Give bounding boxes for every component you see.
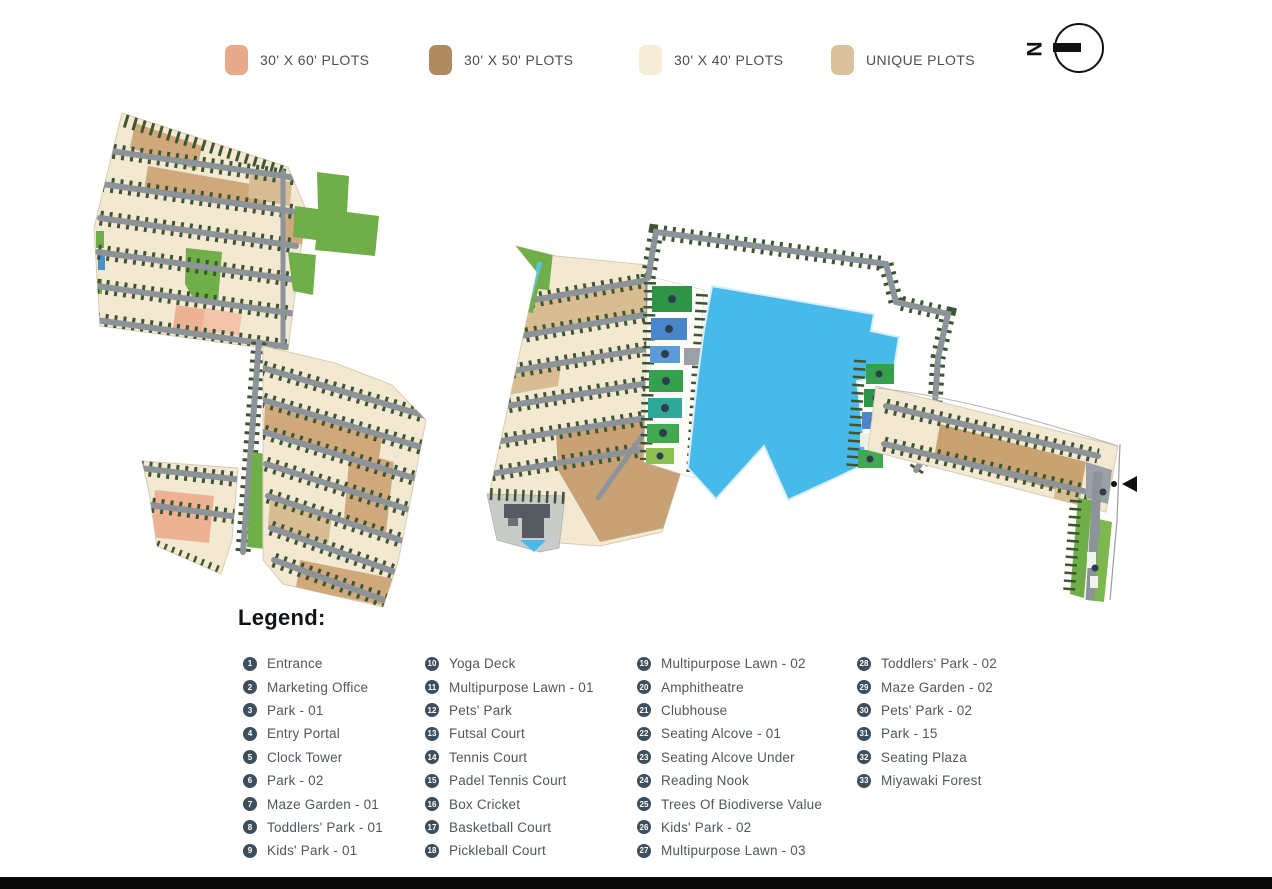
legend-item-label: Basketball Court — [449, 820, 551, 835]
plot-type-label: 30' X 40' PLOTS — [674, 52, 783, 68]
legend-item: 7 Maze Garden - 01 — [243, 792, 383, 815]
legend-item-label: Multipurpose Lawn - 03 — [661, 843, 806, 858]
legend-column: 19 Multipurpose Lawn - 02 20 Amphitheatr… — [637, 652, 822, 863]
legend-item: 18 Pickleball Court — [425, 839, 594, 862]
legend-item: 31 Park - 15 — [857, 722, 997, 745]
plot-color-swatch — [831, 45, 854, 75]
estate-strip-right — [868, 386, 1118, 512]
legend-item: 22 Seating Alcove - 01 — [637, 722, 822, 745]
plot-type-label: UNIQUE PLOTS — [866, 52, 975, 68]
north-compass: N — [1028, 20, 1118, 78]
legend-item: 26 Kids' Park - 02 — [637, 816, 822, 839]
legend-item-number: 29 — [857, 680, 871, 694]
legend-item-number: 4 — [243, 727, 257, 741]
legend-item-number: 26 — [637, 820, 651, 834]
legend-item-number: 9 — [243, 844, 257, 858]
legend-column: 28 Toddlers' Park - 02 29 Maze Garden - … — [857, 652, 997, 792]
plot-type-item: 30' X 60' PLOTS — [225, 45, 369, 75]
legend-item-label: Toddlers' Park - 01 — [267, 820, 383, 835]
legend-item-label: Seating Alcove Under — [661, 750, 795, 765]
legend-item-number: 13 — [425, 727, 439, 741]
legend-item-label: Pets' Park - 02 — [881, 703, 972, 718]
legend-item: 9 Kids' Park - 01 — [243, 839, 383, 862]
park-plus-shaped — [288, 172, 379, 295]
legend-item: 11 Multipurpose Lawn - 01 — [425, 675, 594, 698]
legend-item-label: Trees Of Biodiverse Value — [661, 797, 822, 812]
legend-item-number: 15 — [425, 774, 439, 788]
legend-item-number: 28 — [857, 657, 871, 671]
legend-item-label: Park - 15 — [881, 726, 938, 741]
estate-cluster-upper-left — [94, 113, 307, 350]
legend-item: 25 Trees Of Biodiverse Value — [637, 792, 822, 815]
legend-item-label: Amphitheatre — [661, 680, 744, 695]
legend-item: 28 Toddlers' Park - 02 — [857, 652, 997, 675]
plot-type-label: 30' X 60' PLOTS — [260, 52, 369, 68]
legend-item: 24 Reading Nook — [637, 769, 822, 792]
legend-item-label: Multipurpose Lawn - 01 — [449, 680, 594, 695]
legend-item-number: 22 — [637, 727, 651, 741]
legend-item: 5 Clock Tower — [243, 746, 383, 769]
legend-item-label: Marketing Office — [267, 680, 368, 695]
legend-title: Legend: — [238, 605, 326, 631]
legend-item-number: 27 — [637, 844, 651, 858]
plot-type-item: UNIQUE PLOTS — [831, 45, 975, 75]
park-stream-head — [510, 246, 553, 290]
legend-item-number: 24 — [637, 774, 651, 788]
legend-item-number: 5 — [243, 750, 257, 764]
legend-item-number: 1 — [243, 657, 257, 671]
legend-item: 2 Marketing Office — [243, 675, 383, 698]
legend-item-label: Multipurpose Lawn - 02 — [661, 656, 806, 671]
legend-item: 15 Padel Tennis Court — [425, 769, 594, 792]
legend-item: 29 Maze Garden - 02 — [857, 675, 997, 698]
legend-item-label: Kids' Park - 01 — [267, 843, 357, 858]
legend-item-label: Futsal Court — [449, 726, 525, 741]
legend-item: 1 Entrance — [243, 652, 383, 675]
legend-item-number: 31 — [857, 727, 871, 741]
legend-item-label: Tennis Court — [449, 750, 527, 765]
legend-item: 17 Basketball Court — [425, 816, 594, 839]
legend-item-label: Reading Nook — [661, 773, 749, 788]
legend-item-number: 2 — [243, 680, 257, 694]
legend-item-label: Clubhouse — [661, 703, 727, 718]
plot-color-swatch — [639, 45, 662, 75]
legend-item: 32 Seating Plaza — [857, 746, 997, 769]
legend-item-label: Yoga Deck — [449, 656, 516, 671]
legend-item: 30 Pets' Park - 02 — [857, 699, 997, 722]
legend-item-number: 17 — [425, 820, 439, 834]
legend-item-number: 18 — [425, 844, 439, 858]
site-plan-map — [0, 0, 1272, 889]
legend-item-number: 12 — [425, 703, 439, 717]
legend-item-number: 25 — [637, 797, 651, 811]
legend-item: 27 Multipurpose Lawn - 03 — [637, 839, 822, 862]
legend-item-label: Pets' Park — [449, 703, 512, 718]
legend-item: 21 Clubhouse — [637, 699, 822, 722]
legend-item-label: Entry Portal — [267, 726, 340, 741]
clubhouse — [487, 494, 566, 552]
legend-item-number: 19 — [637, 657, 651, 671]
plot-color-swatch — [429, 45, 452, 75]
legend-item: 4 Entry Portal — [243, 722, 383, 745]
legend-item-label: Entrance — [267, 656, 323, 671]
legend-item: 14 Tennis Court — [425, 746, 594, 769]
legend-item-number: 6 — [243, 774, 257, 788]
legend-item: 10 Yoga Deck — [425, 652, 594, 675]
entrance-arrow-icon — [1122, 476, 1137, 492]
legend-item-number: 8 — [243, 820, 257, 834]
plot-type-item: 30' X 50' PLOTS — [429, 45, 573, 75]
legend-item-number: 33 — [857, 774, 871, 788]
legend-item-label: Miyawaki Forest — [881, 773, 982, 788]
legend-item-label: Clock Tower — [267, 750, 342, 765]
legend-item-label: Maze Garden - 01 — [267, 797, 379, 812]
legend-item: 13 Futsal Court — [425, 722, 594, 745]
legend-item-label: Park - 02 — [267, 773, 324, 788]
legend-item-number: 32 — [857, 750, 871, 764]
compass-bar-icon — [1053, 43, 1081, 52]
legend-item-number: 3 — [243, 703, 257, 717]
legend-column: 10 Yoga Deck 11 Multipurpose Lawn - 01 1… — [425, 652, 594, 863]
legend-item: 8 Toddlers' Park - 01 — [243, 816, 383, 839]
compass-circle-icon — [1054, 23, 1104, 73]
legend-item-label: Padel Tennis Court — [449, 773, 566, 788]
legend-item-label: Toddlers' Park - 02 — [881, 656, 997, 671]
legend-item-number: 7 — [243, 797, 257, 811]
legend-item: 19 Multipurpose Lawn - 02 — [637, 652, 822, 675]
legend-item-number: 10 — [425, 657, 439, 671]
legend-item-label: Kids' Park - 02 — [661, 820, 751, 835]
legend-item-label: Box Cricket — [449, 797, 520, 812]
legend-item-number: 11 — [425, 680, 439, 694]
legend-item-number: 21 — [637, 703, 651, 717]
legend-item-number: 30 — [857, 703, 871, 717]
legend-item-number: 23 — [637, 750, 651, 764]
legend-item-number: 20 — [637, 680, 651, 694]
legend-item-label: Pickleball Court — [449, 843, 546, 858]
legend-item-number: 16 — [425, 797, 439, 811]
north-label: N — [1024, 41, 1048, 56]
plot-color-swatch — [225, 45, 248, 75]
legend-item: 20 Amphitheatre — [637, 675, 822, 698]
legend-item-label: Seating Alcove - 01 — [661, 726, 781, 741]
legend-column: 1 Entrance 2 Marketing Office 3 Park - 0… — [243, 652, 383, 863]
legend-item: 6 Park - 02 — [243, 769, 383, 792]
legend-item: 23 Seating Alcove Under — [637, 746, 822, 769]
legend-item: 33 Miyawaki Forest — [857, 769, 997, 792]
estate-block-lower-left — [140, 461, 242, 574]
legend-item-label: Maze Garden - 02 — [881, 680, 993, 695]
legend-item: 12 Pets' Park — [425, 699, 594, 722]
plot-type-item: 30' X 40' PLOTS — [639, 45, 783, 75]
plot-type-label: 30' X 50' PLOTS — [464, 52, 573, 68]
bottom-black-bar — [0, 877, 1272, 889]
legend-item: 3 Park - 01 — [243, 699, 383, 722]
legend-item-number: 14 — [425, 750, 439, 764]
estate-cluster-lower-middle — [263, 346, 426, 608]
legend-item-label: Seating Plaza — [881, 750, 967, 765]
legend-item-label: Park - 01 — [267, 703, 324, 718]
legend-item: 16 Box Cricket — [425, 792, 594, 815]
